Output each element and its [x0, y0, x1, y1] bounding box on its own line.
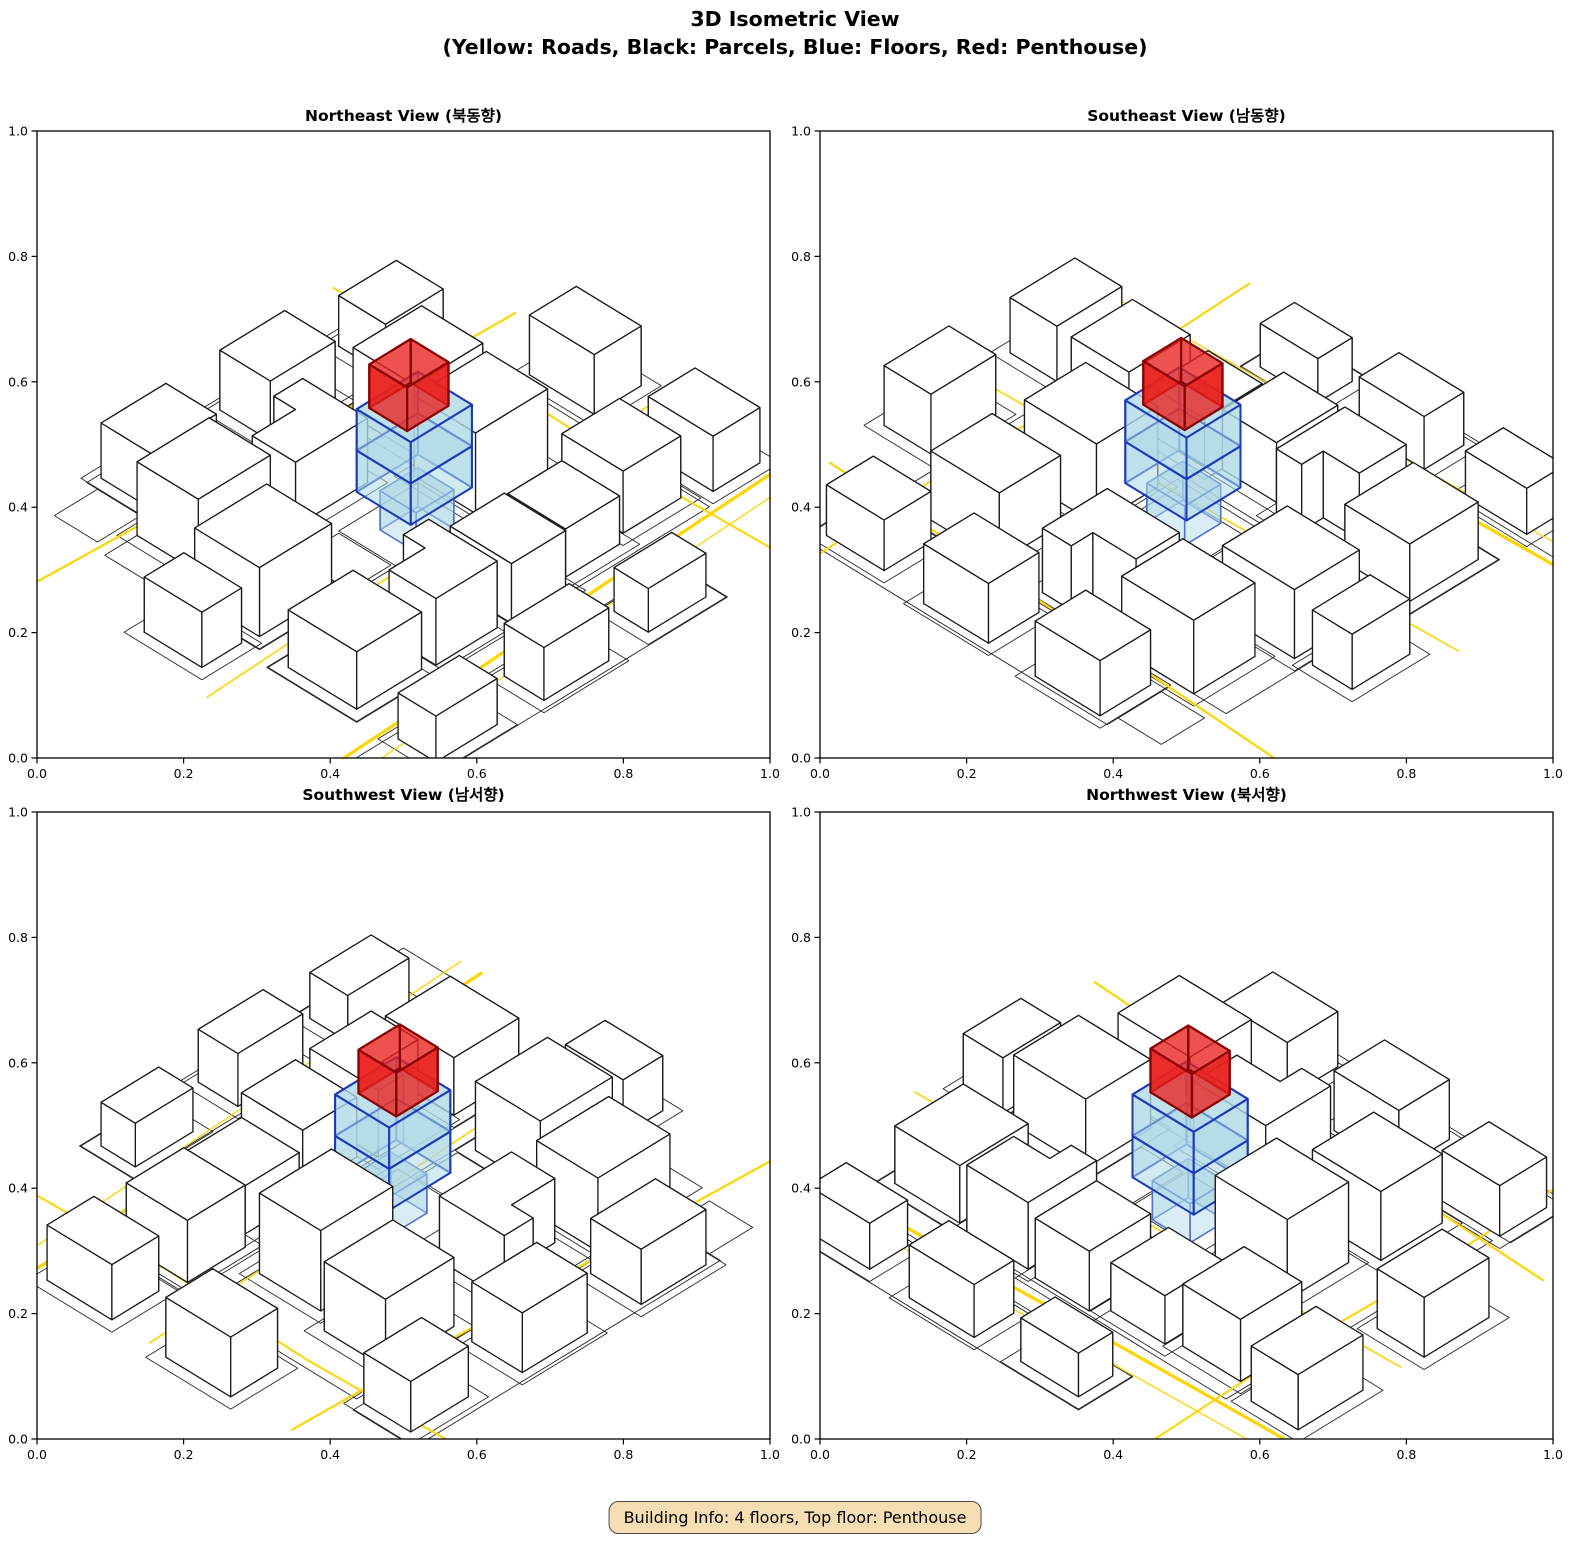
svg-text:0.6: 0.6: [791, 374, 811, 389]
svg-text:0.8: 0.8: [1396, 1447, 1416, 1462]
figure-title-line2: (Yellow: Roads, Black: Parcels, Blue: Fl…: [0, 34, 1590, 62]
svg-text:1.0: 1.0: [760, 766, 780, 781]
svg-text:0.2: 0.2: [957, 1447, 977, 1462]
svg-text:0.4: 0.4: [320, 766, 340, 781]
svg-text:0.6: 0.6: [8, 1055, 28, 1070]
svg-text:0.0: 0.0: [27, 1447, 47, 1462]
svg-text:0.0: 0.0: [791, 751, 811, 766]
subplot-title-northeast: Northeast View (북동향): [37, 104, 770, 126]
subplot-canvas-southeast: 0.00.00.20.20.40.40.60.60.80.81.01.0: [772, 123, 1590, 795]
subplot-canvas-northwest: 0.00.00.20.20.40.40.60.60.80.81.01.0: [772, 804, 1590, 1476]
svg-text:0.0: 0.0: [810, 1447, 830, 1462]
svg-text:1.0: 1.0: [791, 124, 811, 139]
svg-text:0.4: 0.4: [320, 1447, 340, 1462]
svg-text:0.0: 0.0: [27, 766, 47, 781]
svg-text:0.0: 0.0: [791, 1432, 811, 1447]
svg-text:0.0: 0.0: [810, 766, 830, 781]
svg-text:0.4: 0.4: [791, 1181, 811, 1196]
svg-text:0.0: 0.0: [8, 751, 28, 766]
svg-text:0.2: 0.2: [8, 1306, 28, 1321]
svg-text:0.6: 0.6: [467, 766, 487, 781]
svg-text:0.8: 0.8: [791, 930, 811, 945]
svg-text:0.2: 0.2: [174, 1447, 194, 1462]
svg-text:0.2: 0.2: [174, 766, 194, 781]
svg-text:0.8: 0.8: [1396, 766, 1416, 781]
building-info-annotation: Building Info: 4 floors, Top floor: Pent…: [609, 1501, 982, 1534]
svg-text:0.8: 0.8: [791, 249, 811, 264]
svg-text:0.0: 0.0: [8, 1432, 28, 1447]
svg-text:0.4: 0.4: [8, 1181, 28, 1196]
svg-text:0.4: 0.4: [1103, 766, 1123, 781]
svg-text:1.0: 1.0: [8, 124, 28, 139]
svg-text:0.6: 0.6: [791, 1055, 811, 1070]
svg-text:0.8: 0.8: [613, 766, 633, 781]
svg-text:0.4: 0.4: [8, 500, 28, 515]
svg-text:1.0: 1.0: [791, 805, 811, 820]
svg-text:1.0: 1.0: [1543, 766, 1563, 781]
subplot-title-southeast: Southeast View (남동향): [820, 104, 1553, 126]
svg-text:0.2: 0.2: [791, 1306, 811, 1321]
svg-text:0.2: 0.2: [957, 766, 977, 781]
svg-text:1.0: 1.0: [1543, 1447, 1563, 1462]
svg-text:0.8: 0.8: [613, 1447, 633, 1462]
svg-text:1.0: 1.0: [8, 805, 28, 820]
svg-text:0.2: 0.2: [8, 625, 28, 640]
svg-text:0.6: 0.6: [467, 1447, 487, 1462]
subplot-title-northwest: Northwest View (북서향): [820, 783, 1553, 805]
svg-text:0.4: 0.4: [1103, 1447, 1123, 1462]
subplot-canvas-northeast: 0.00.00.20.20.40.40.60.60.80.81.01.0: [0, 123, 809, 795]
subplot-title-southwest: Southwest View (남서향): [37, 783, 770, 805]
svg-text:0.8: 0.8: [8, 249, 28, 264]
svg-text:0.4: 0.4: [791, 500, 811, 515]
svg-text:0.2: 0.2: [791, 625, 811, 640]
svg-text:0.6: 0.6: [8, 374, 28, 389]
svg-text:0.6: 0.6: [1250, 1447, 1270, 1462]
subplot-canvas-southwest: 0.00.00.20.20.40.40.60.60.80.81.01.0: [0, 804, 809, 1476]
svg-text:1.0: 1.0: [760, 1447, 780, 1462]
figure-title: 3D Isometric View (Yellow: Roads, Black:…: [0, 6, 1590, 61]
svg-text:0.8: 0.8: [8, 930, 28, 945]
figure-title-line1: 3D Isometric View: [0, 6, 1590, 34]
svg-text:0.6: 0.6: [1250, 766, 1270, 781]
